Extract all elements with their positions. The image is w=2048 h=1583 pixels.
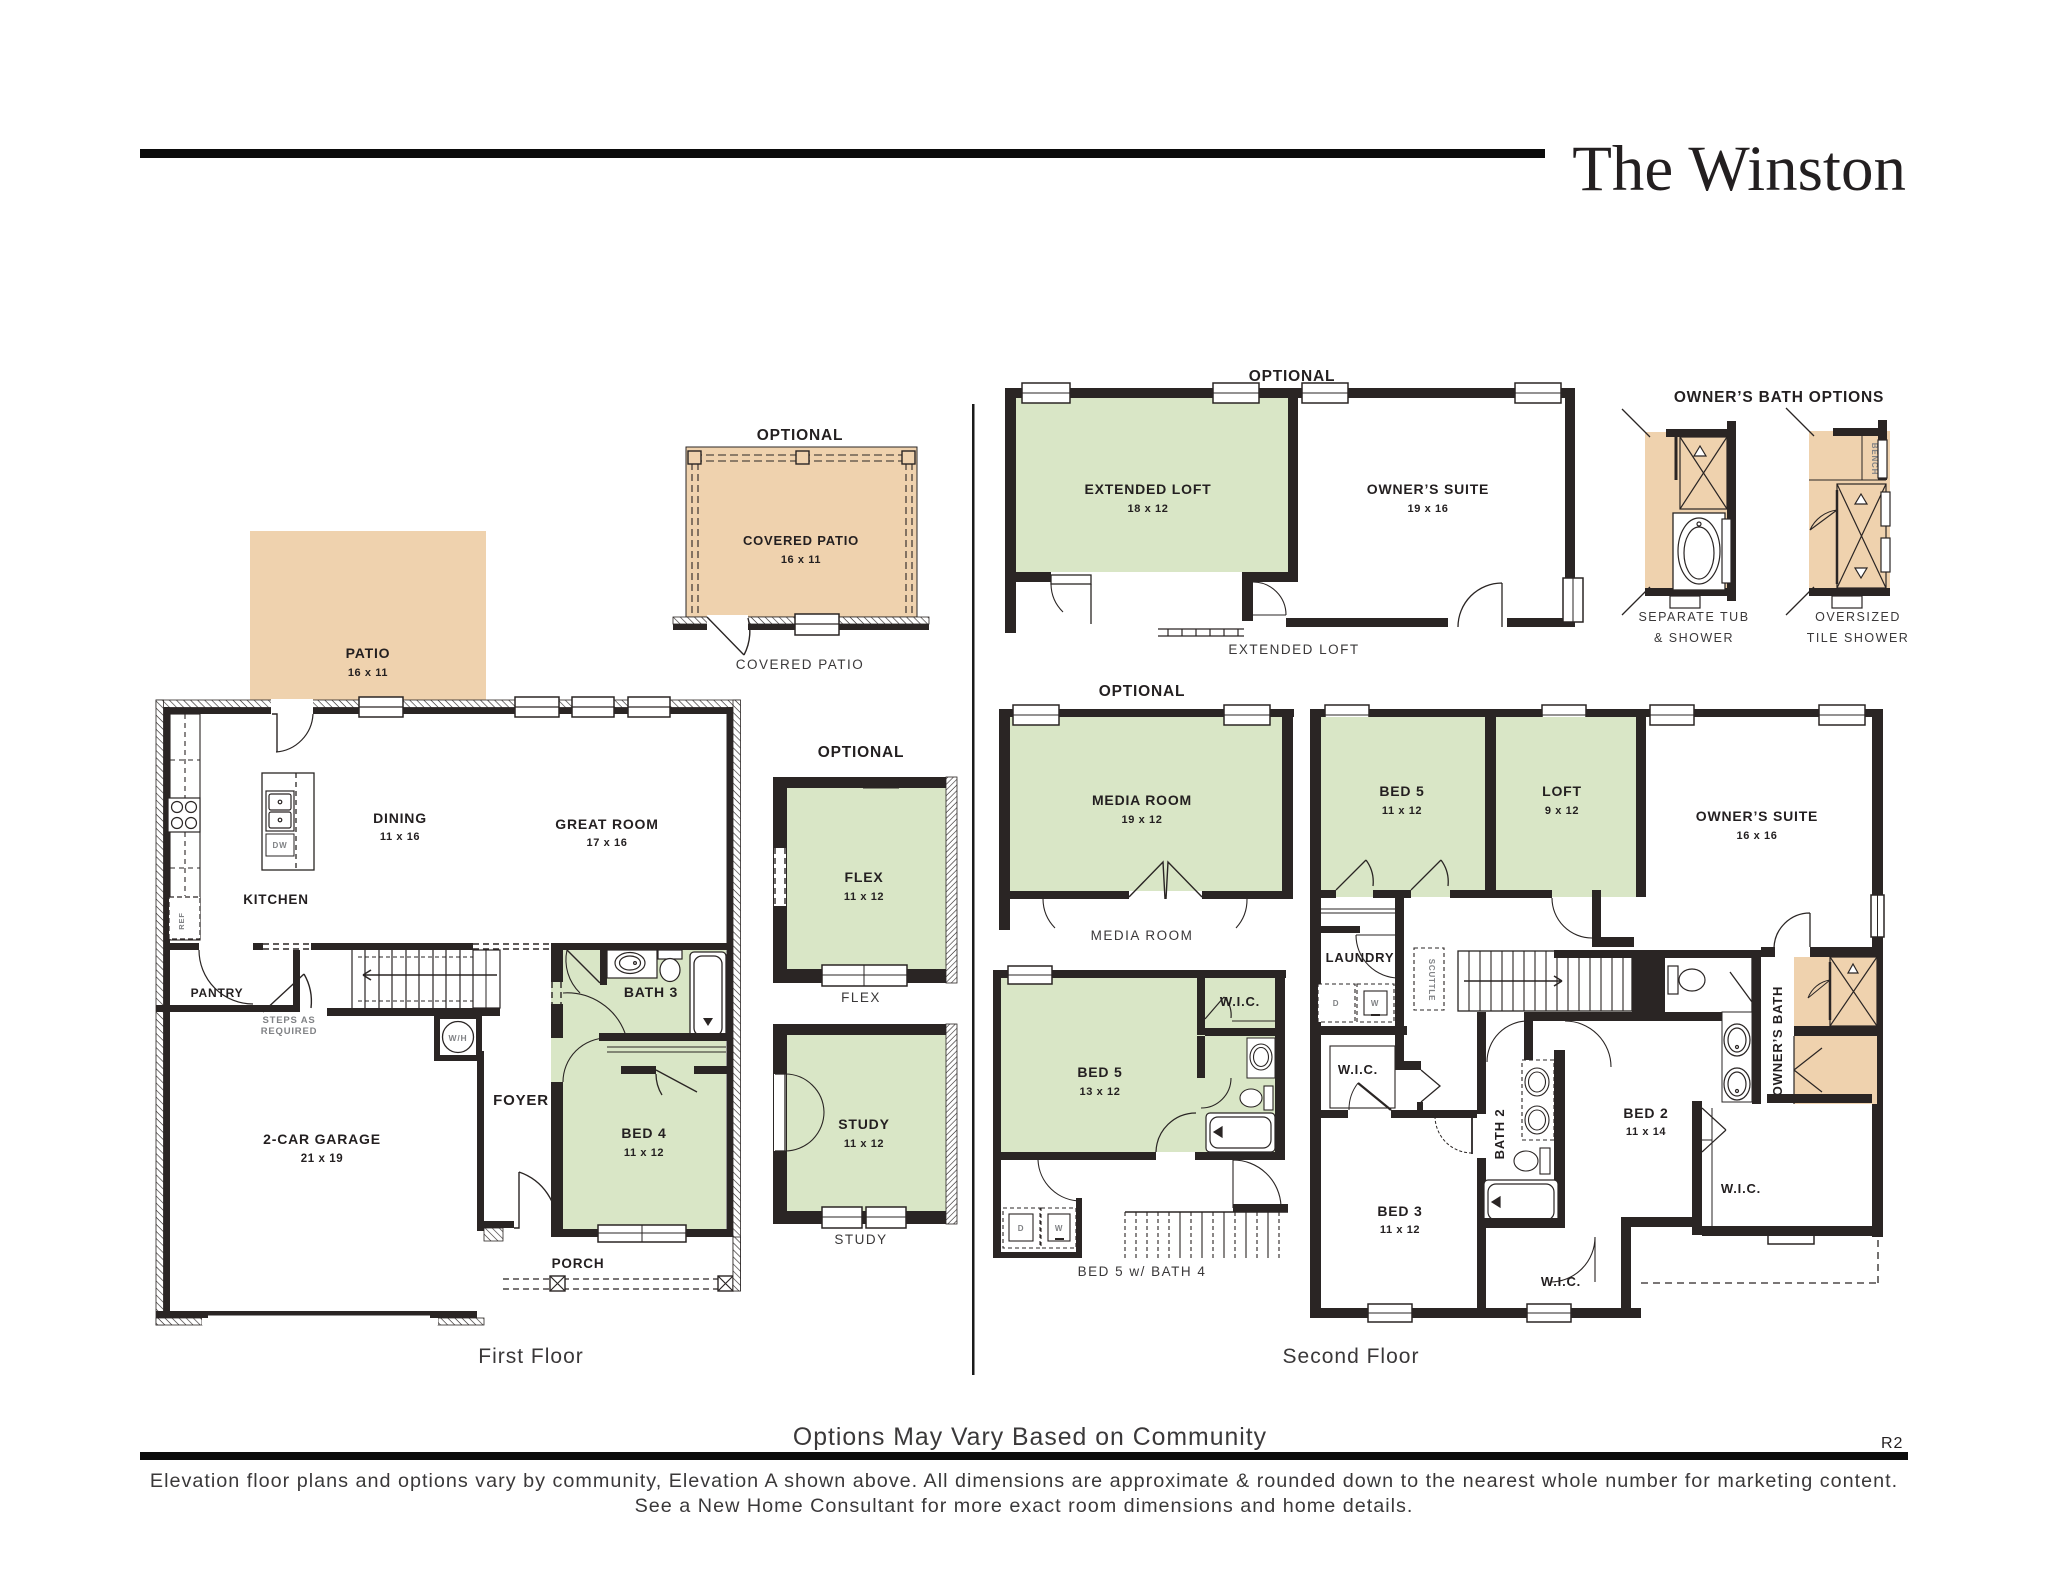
svg-text:STUDY: STUDY <box>834 1232 887 1247</box>
svg-text:OWNER’S SUITE: OWNER’S SUITE <box>1696 808 1818 824</box>
svg-text:W/H: W/H <box>449 1033 468 1043</box>
svg-text:REF: REF <box>177 912 186 929</box>
svg-text:17 x 16: 17 x 16 <box>587 837 628 849</box>
svg-text:See a New Home Consultant for: See a New Home Consultant for more exact… <box>635 1495 1414 1517</box>
svg-text:LOFT: LOFT <box>1542 783 1582 799</box>
svg-text:EXTENDED LOFT: EXTENDED LOFT <box>1084 481 1211 497</box>
svg-text:BATH 2: BATH 2 <box>1492 1109 1507 1160</box>
svg-text:First Floor: First Floor <box>478 1345 584 1368</box>
svg-text:Second Floor: Second Floor <box>1283 1345 1420 1368</box>
svg-text:FLEX: FLEX <box>845 869 884 885</box>
svg-text:MEDIA ROOM: MEDIA ROOM <box>1091 928 1194 943</box>
svg-text:FLEX: FLEX <box>841 990 881 1005</box>
svg-text:W.I.C.: W.I.C. <box>1721 1181 1761 1196</box>
svg-text:11 x 12: 11 x 12 <box>624 1147 664 1159</box>
svg-text:11 x 12: 11 x 12 <box>844 1138 884 1150</box>
svg-text:11 x 12: 11 x 12 <box>1382 805 1422 817</box>
svg-text:BED 5: BED 5 <box>1077 1064 1122 1080</box>
svg-text:19 x 16: 19 x 16 <box>1408 503 1449 515</box>
svg-text:PATIO: PATIO <box>346 645 391 661</box>
svg-text:PORCH: PORCH <box>552 1256 605 1271</box>
svg-text:18 x 12: 18 x 12 <box>1128 503 1169 515</box>
svg-text:SEPARATE TUB: SEPARATE TUB <box>1638 610 1749 624</box>
svg-text:Elevation floor plans and opti: Elevation floor plans and options vary b… <box>150 1470 1898 1492</box>
svg-text:MEDIA ROOM: MEDIA ROOM <box>1092 792 1192 808</box>
svg-text:STEPS AS: STEPS AS <box>262 1015 315 1026</box>
svg-text:13 x 12: 13 x 12 <box>1080 1086 1121 1098</box>
svg-text:W: W <box>1055 1224 1063 1233</box>
svg-text:11 x 12: 11 x 12 <box>844 891 884 903</box>
svg-text:The Winston: The Winston <box>1572 133 1906 205</box>
svg-text:OPTIONAL: OPTIONAL <box>757 427 843 444</box>
svg-text:OWNER’S SUITE: OWNER’S SUITE <box>1367 481 1489 497</box>
svg-text:REQUIRED: REQUIRED <box>261 1026 318 1037</box>
svg-text:BED 2: BED 2 <box>1623 1105 1668 1121</box>
svg-text:W: W <box>1371 999 1379 1008</box>
svg-text:R2: R2 <box>1881 1435 1903 1452</box>
svg-text:SCUTTLE: SCUTTLE <box>1427 959 1436 1002</box>
svg-text:16 x 11: 16 x 11 <box>348 667 388 679</box>
svg-text:& SHOWER: & SHOWER <box>1654 631 1734 645</box>
svg-text:19 x 12: 19 x 12 <box>1122 814 1163 826</box>
svg-text:PANTRY: PANTRY <box>191 986 244 1000</box>
svg-text:BED 4: BED 4 <box>621 1125 666 1141</box>
svg-text:OPTIONAL: OPTIONAL <box>818 744 904 761</box>
svg-text:DINING: DINING <box>373 810 427 826</box>
svg-text:KITCHEN: KITCHEN <box>243 892 309 907</box>
svg-text:11 x 12: 11 x 12 <box>1380 1224 1420 1236</box>
svg-text:BED 5 w/ BATH 4: BED 5 w/ BATH 4 <box>1078 1264 1207 1279</box>
svg-text:DW: DW <box>273 841 288 850</box>
svg-text:Options May Vary Based on Comm: Options May Vary Based on Community <box>793 1424 1267 1451</box>
svg-text:GREAT ROOM: GREAT ROOM <box>555 816 658 832</box>
svg-text:BED 3: BED 3 <box>1377 1203 1422 1219</box>
svg-text:D: D <box>1333 999 1340 1008</box>
svg-text:2-CAR GARAGE: 2-CAR GARAGE <box>263 1131 381 1147</box>
svg-text:OPTIONAL: OPTIONAL <box>1099 683 1185 700</box>
svg-text:W.I.C.: W.I.C. <box>1220 994 1260 1009</box>
svg-text:9 x 12: 9 x 12 <box>1545 805 1579 817</box>
svg-text:FOYER: FOYER <box>493 1092 549 1109</box>
svg-text:BED 5: BED 5 <box>1379 783 1424 799</box>
svg-text:TILE SHOWER: TILE SHOWER <box>1807 631 1910 645</box>
svg-text:COVERED PATIO: COVERED PATIO <box>743 533 859 548</box>
svg-text:STUDY: STUDY <box>838 1116 889 1132</box>
svg-text:EXTENDED LOFT: EXTENDED LOFT <box>1228 642 1359 657</box>
svg-text:W.I.C.: W.I.C. <box>1338 1062 1378 1077</box>
svg-text:COVERED PATIO: COVERED PATIO <box>736 657 865 672</box>
svg-text:BATH 3: BATH 3 <box>624 984 678 1000</box>
svg-text:W.I.C.: W.I.C. <box>1541 1274 1581 1289</box>
svg-text:16 x 11: 16 x 11 <box>781 554 821 566</box>
svg-text:OWNER’S BATH OPTIONS: OWNER’S BATH OPTIONS <box>1674 389 1884 406</box>
svg-text:OWNER’S BATH: OWNER’S BATH <box>1770 986 1785 1096</box>
svg-text:D: D <box>1018 1224 1025 1233</box>
svg-text:21 x 19: 21 x 19 <box>301 1153 344 1165</box>
svg-text:16 x 16: 16 x 16 <box>1737 830 1778 842</box>
svg-text:11 x 16: 11 x 16 <box>380 831 420 843</box>
svg-text:OVERSIZED: OVERSIZED <box>1815 610 1901 624</box>
svg-text:11 x 14: 11 x 14 <box>1626 1126 1667 1138</box>
